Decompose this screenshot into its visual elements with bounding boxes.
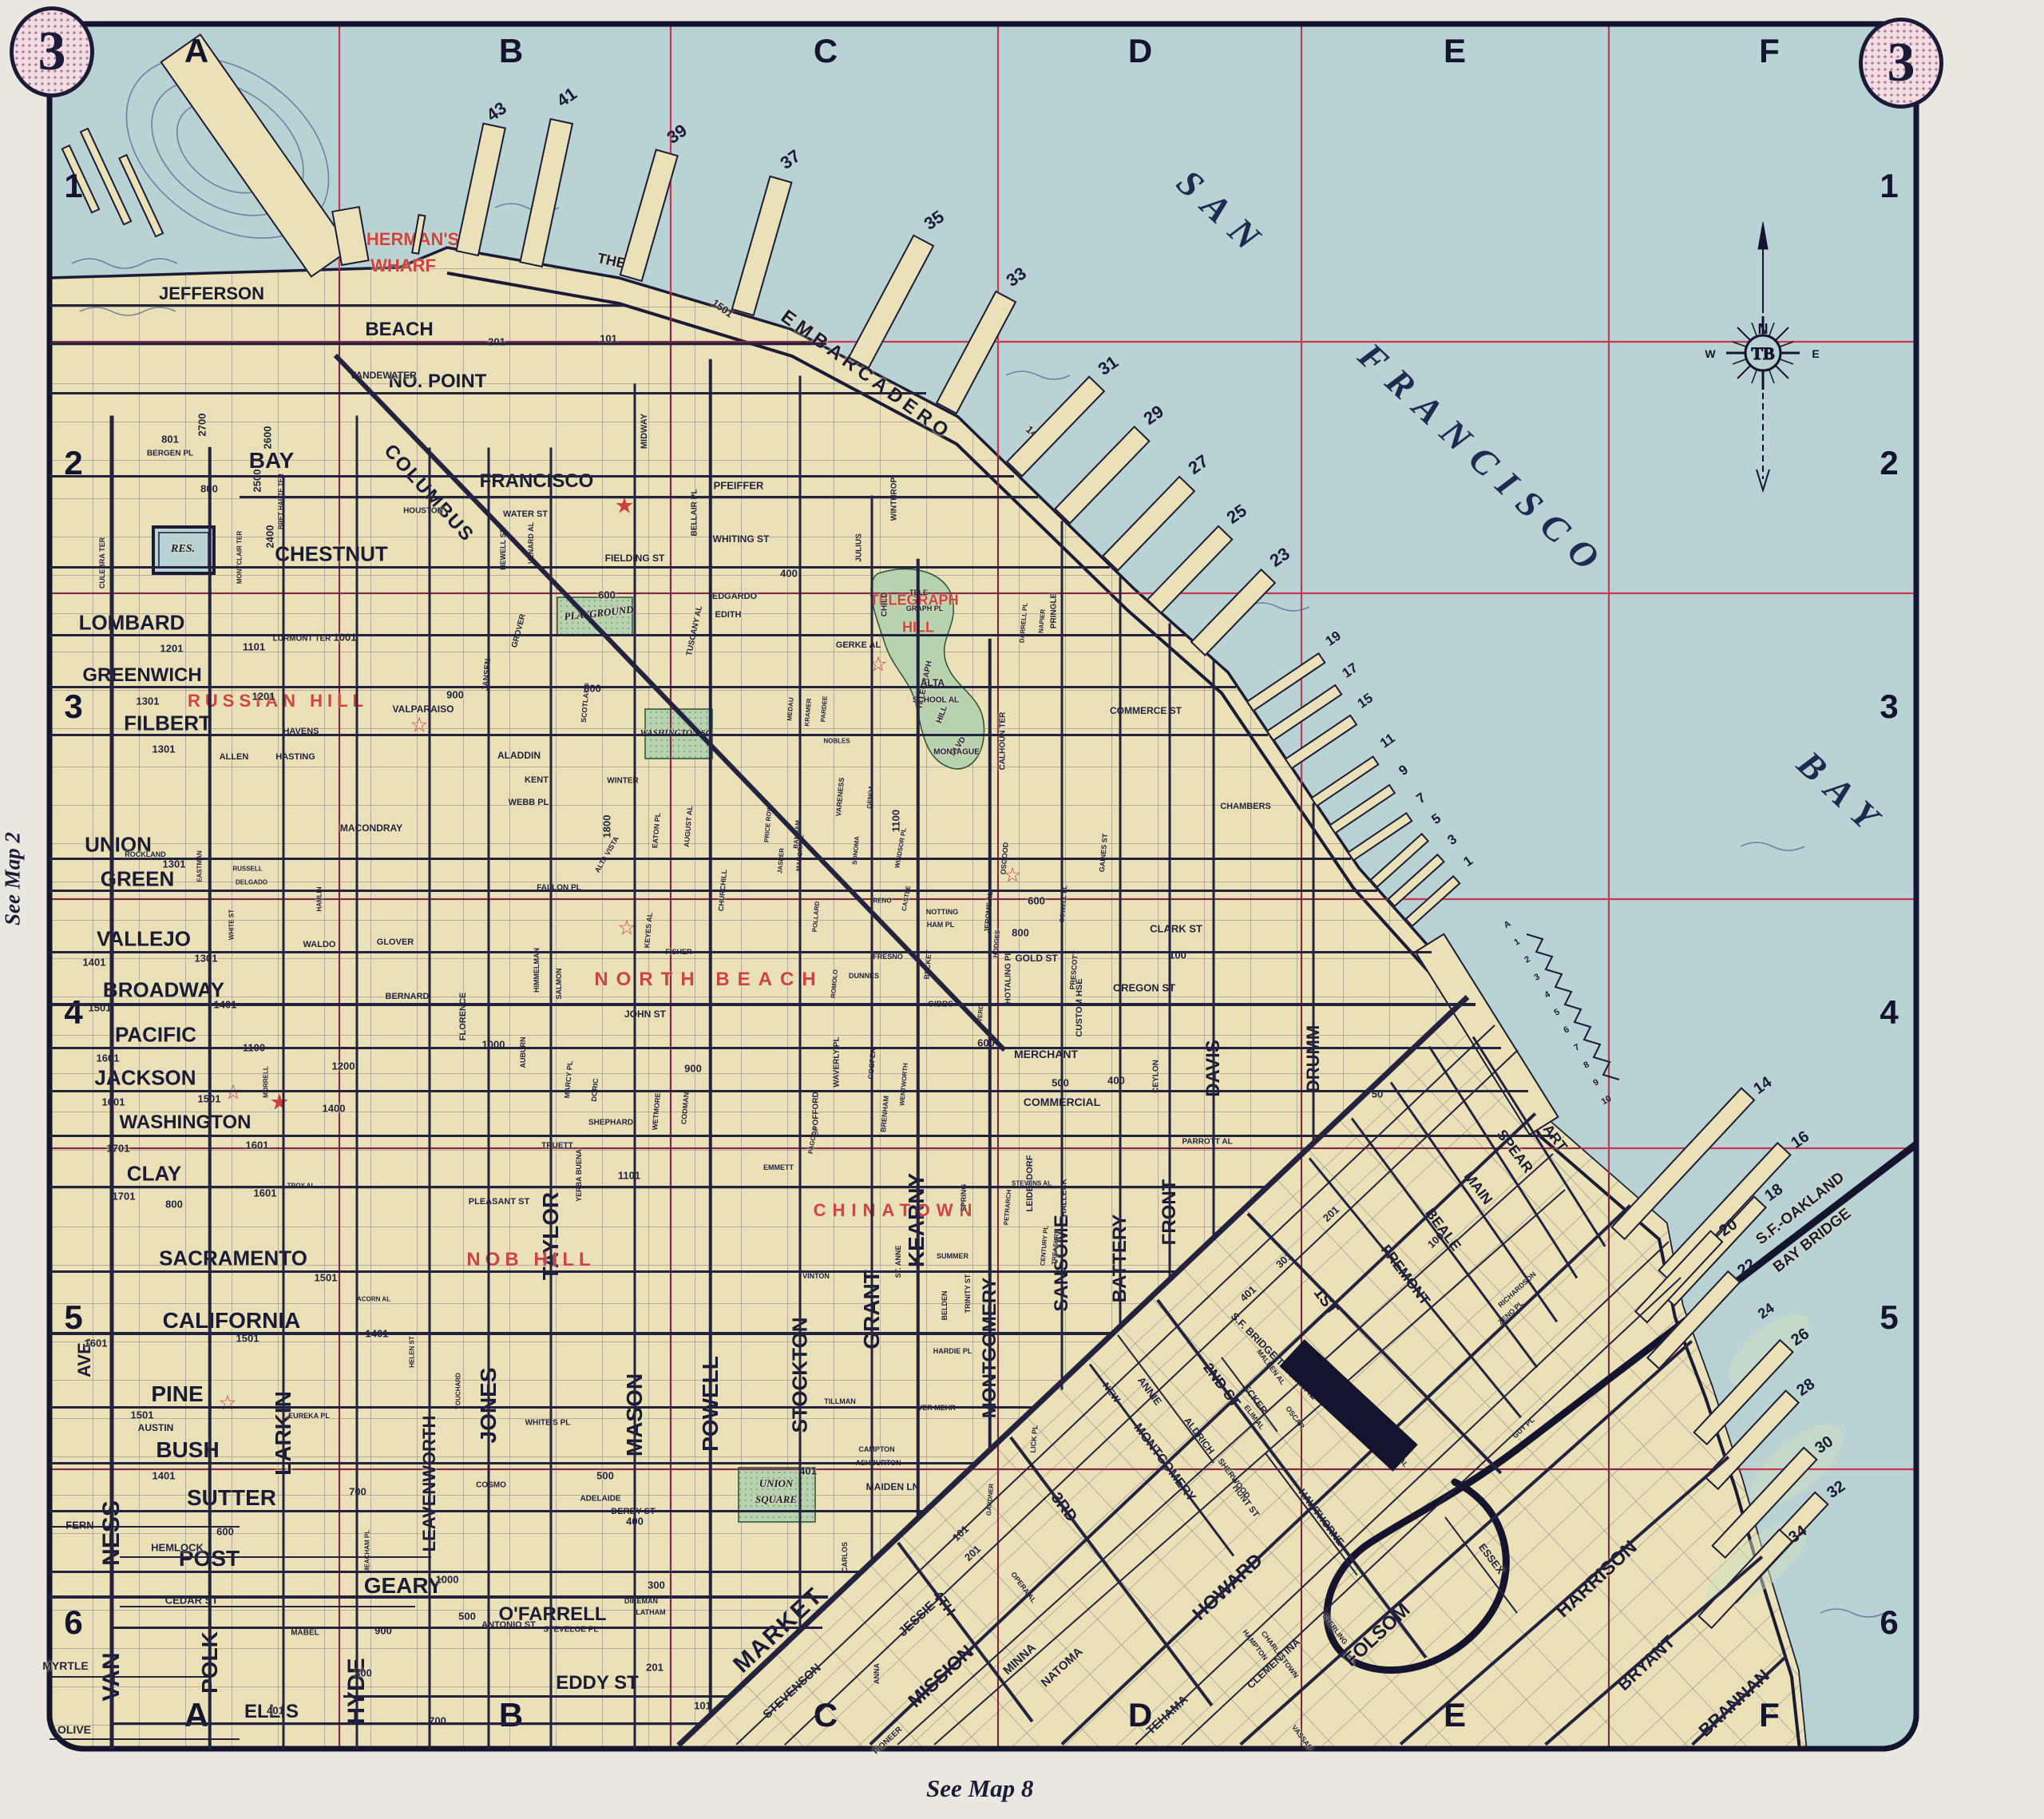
street-columbus-ave [334,354,1006,1052]
label-water-st: WATER ST [503,509,548,519]
ferry-slip-a: A [1503,919,1513,930]
label-vinton: VINTON [802,1272,830,1280]
label-windsor-pl: WINDSOR PL [893,827,908,869]
label-broadway: BROADWAY [103,978,224,1003]
label-california: CALIFORNIA [163,1308,301,1334]
pier-23 [1190,569,1277,656]
ferry-slip-9: 9 [1591,1077,1600,1088]
pier-number-22: 22 [1734,1255,1759,1281]
block-number-2500: 2500 [252,470,263,493]
pier-26 [1693,1339,1794,1445]
street-van-ness-ave [110,415,114,1749]
label-macondray: MACONDRAY [340,822,402,834]
label-union: UNION [759,1477,794,1490]
pier-number-30: 30 [1812,1433,1836,1458]
block-number-1501: 1501 [131,1409,154,1421]
street-bay-st [50,475,1014,478]
grid-col-a-bottom: A [184,1696,208,1734]
wharf-structure [118,154,164,238]
label-myrtle: MYRTLE [42,1659,89,1672]
label-gold-st: GOLD ST [1015,953,1057,964]
label-medau: MEDAU [786,697,795,721]
label-dunnes: DUNNES [849,972,879,980]
ferry-slip-2: 2 [1523,954,1531,965]
block-number-2400: 2400 [264,525,276,549]
street-bridge-terminal-building [1279,1339,1417,1472]
label-kramer: KRAMER [803,698,813,727]
label-summer: SUMMER [937,1252,969,1260]
label-john-st: JOHN ST [624,1009,666,1020]
label-chestnut: CHESTNUT [275,542,388,567]
label-helen-st: HELEN ST [409,1336,416,1368]
label-campton: CAMPTON [858,1445,894,1453]
pier-number-33: 33 [1003,263,1031,291]
label-spring: SPRING [960,1184,968,1212]
pier-number-16: 16 [1788,1127,1812,1153]
grid-row-6-right: 6 [1880,1603,1898,1642]
label-allen: ALLEN [220,752,249,762]
grid-col-f-top: F [1759,32,1780,70]
street-washington-st [50,1135,1553,1137]
ferry-slip-7: 7 [1572,1042,1581,1052]
grid-col-a-top: A [184,32,208,70]
pier-35 [848,234,935,369]
label-florence: FLORENCE [458,993,468,1041]
label-24: 24 [1755,1300,1777,1323]
block-number-400: 400 [780,568,798,580]
see-map-2-reference: See Map 2 [1,799,26,959]
label-anna: ANNA [873,1663,881,1684]
block-number-600: 600 [1028,895,1045,907]
label-pringle: PRINGLE [1050,593,1059,628]
label-jefferson: JEFFERSON [159,283,264,304]
block-number-800: 800 [165,1199,183,1211]
street-bush-st [50,1462,976,1464]
label-washington: WASHINGTON [120,1112,252,1134]
street-leavenworth-st [429,447,431,1749]
label-grover: GROVER [510,613,528,649]
label-aladdin: ALADDIN [497,750,541,761]
street-broadway [50,1003,1476,1006]
label-child: CHILD [881,592,889,617]
label-russell: RUSSELL [232,866,262,873]
label-nobles: NOBLES [823,738,850,745]
label-waldo: WALDO [303,940,336,949]
street-battery-st [1119,577,1122,1329]
label-eastman: EASTMAN [196,850,204,882]
label-napier: NAPIER [1037,609,1047,634]
pier-43 [455,122,506,256]
label-wharf: WHARF [370,256,436,276]
pier-number-11: 11 [1377,731,1398,752]
map-number-badge-top-right: 3 [1859,18,1943,109]
pier-number-17: 17 [1340,660,1361,681]
block-number-1601: 1601 [254,1187,277,1199]
label-hodges: HODGES [992,929,1001,957]
street-greenwich-st [50,686,1236,688]
label-reno: RENO [873,898,891,905]
pier-number-14: 14 [1750,1073,1775,1099]
street-myrtle-st [50,1676,208,1678]
pier-number-26: 26 [1788,1325,1812,1350]
grid-row-3-right: 3 [1880,688,1898,726]
label-webb-pl: WEBB PL [509,798,549,807]
label-tele: TELE- [909,588,930,596]
street-pacific-ave [50,1047,1501,1049]
label-meacham-pl: MEACHAM PL [364,1530,371,1573]
block-number-800: 800 [584,683,601,695]
street-lombard-st [50,634,1186,636]
label-maiden-ln: MAIDEN LN [866,1481,920,1492]
block-number-1201: 1201 [160,643,184,655]
label-eaton-pl: EATON PL [651,812,662,848]
label-hardie-pl: HARDIE PL [933,1347,972,1355]
ferry-slip-8: 8 [1582,1060,1590,1070]
pier-number-27: 27 [1185,450,1213,478]
label-brenham: BRENHAM [879,1096,890,1133]
grid-col-f-bottom: F [1759,1696,1780,1734]
block-number-900: 900 [684,1063,702,1075]
street-montgomery-st [988,639,992,1449]
pier-37 [731,176,793,316]
label-calhoun-ter: CALHOUN TER [999,712,1008,771]
street-sacramento-st [50,1270,1176,1273]
label-fresno: FRESNO [873,953,903,961]
grid-col-e-top: E [1444,32,1466,70]
label-lombard: LOMBARD [79,611,185,636]
label-montague: MONTAGUE [933,748,980,757]
block-number-201: 201 [646,1662,664,1674]
label-himmelman: HIMMELMAN [533,948,541,993]
grid-col-b-top: B [499,32,523,70]
ferry-slip-10: 10 [1600,1094,1614,1108]
label-white-st: WHITE ST [228,909,236,940]
label-codman: CODMAN [679,1092,690,1124]
wharf-structure [80,128,133,226]
label-latham: LATHAM [636,1608,665,1616]
label-graph-pl: GRAPH PL [906,604,944,612]
label-truett: TRUETT [541,1142,572,1151]
block-number-2600: 2600 [262,426,274,450]
street-hemlock-st [120,1556,431,1558]
street-larkin-st [283,476,285,1749]
grid-row-1-right: 1 [1880,167,1898,205]
label-trinity-st: TRINITY ST [964,1274,972,1314]
block-number-1401: 1401 [83,957,106,969]
label-francisco: FRANCISCO [480,470,594,493]
street-davis-st [1213,660,1215,1238]
ferry-slip-1: 1 [1512,937,1521,947]
label-emmett: EMMETT [763,1163,794,1171]
street-minna-st [897,1153,1553,1745]
pier-27 [1102,476,1195,572]
pier-number-19: 19 [1323,628,1345,649]
label-chambers: CHAMBERS [1220,802,1271,811]
pier-number-35: 35 [921,206,949,234]
label-s-f-oakland: S.F.-OAKLAND [1753,1169,1848,1249]
pier-33 [936,291,1017,414]
pier-number-29: 29 [1140,401,1168,429]
pier-number-3: 3 [1444,831,1460,849]
label-white-s-pl: WHITE'S PL [525,1419,571,1428]
street-ofarrell-st [112,1627,822,1629]
street-front-st [1169,623,1171,1279]
block-number-1301: 1301 [137,695,160,707]
grid-col-b-bottom: B [499,1696,523,1734]
label-mabel: MABEL [291,1629,319,1638]
label-bergen-pl: BERGEN PL [147,450,193,458]
pier-number-32: 32 [1824,1477,1848,1503]
label-wentworth: WENTWORTH [898,1063,909,1106]
ferry-slip-6: 6 [1562,1024,1571,1035]
label-eddy-st: EDDY ST [556,1672,639,1694]
block-number-1800: 1800 [601,815,613,838]
label-petrarch: PETRARCH [1003,1189,1013,1225]
label-morrell: MORRELL [263,1066,270,1098]
street-jessie-st [784,1049,1518,1745]
label-oregon-st: OREGON ST [1113,982,1175,994]
label-kent: KENT [525,775,549,785]
label-essex: ESSEX [1476,1541,1507,1576]
grid-col-d-bottom: D [1128,1696,1152,1734]
street-powell-st [709,359,712,1714]
label-res: RES. [171,543,195,556]
label-russian-hill: RUSSIAN HILL [188,691,368,711]
pier-number-39: 39 [664,120,691,148]
label-clark-st: CLARK ST [1150,923,1202,935]
label-darrell-pl: DARRELL PL [1018,602,1028,643]
label-natoma: NATOMA [1039,1645,1086,1690]
label-austin: AUSTIN [138,1422,174,1433]
pier-number-41: 41 [553,83,581,111]
label-gaines-st: GAINES ST [1098,833,1109,872]
label-august-al: AUGUST AL [683,806,695,848]
label-ham-pl: HAM PL [927,921,955,929]
label-hotaling-pl: HOTALING PL [1004,950,1013,1004]
label-adelaide: ADELAIDE [580,1495,620,1504]
label-guy-pl: GUY PL [1511,1416,1535,1440]
label-st-anne: ST. ANNE [894,1246,902,1278]
label-culebra-ter: CULEBRA TER [98,537,106,588]
pier-number-25: 25 [1223,500,1251,528]
label-merchant: MERCHANT [1014,1048,1078,1060]
grid-col-d-top: D [1128,32,1152,70]
block-number-1601: 1601 [246,1139,269,1151]
pier-number-31: 31 [1095,351,1123,379]
grid-row-5-right: 5 [1880,1298,1898,1337]
pier-number-7: 7 [1413,790,1428,807]
label-vassar: VASSAR [1290,1723,1314,1751]
ferry-slip-4: 4 [1543,989,1551,1000]
label-montclair-ter: MONTCLAIR TER [236,531,244,584]
block-number-500: 500 [596,1470,614,1482]
label-bay: BAY [1789,743,1897,847]
street-union-st [50,858,1351,860]
label-notting: NOTTING [926,908,959,916]
pier-number-43: 43 [483,97,511,125]
block-number-1201: 1201 [252,691,275,703]
wharf-structure [1414,933,1559,1135]
ferry-slip-5: 5 [1552,1007,1561,1017]
block-number-300: 300 [648,1579,665,1591]
label-sutter: SUTTER [187,1485,276,1511]
block-number-900: 900 [446,689,464,701]
street-clay-st [50,1186,1266,1188]
street-filbert-st [50,734,1268,736]
pier-number-5: 5 [1428,810,1444,828]
street-polk-st [208,447,212,1749]
street-tehama-st [1135,1241,1669,1745]
label-pacific: PACIFIC [115,1023,196,1048]
block-number-600: 600 [598,589,616,601]
label-salmon: SALMON [555,969,563,1000]
label-yerba-buena: YERBA BUENA [575,1149,583,1202]
label-sonoma: SONOMA [851,836,861,866]
label-shephard: SHEPHARD [588,1119,633,1127]
street-pine-st [50,1406,1035,1409]
block-number-800: 800 [1012,927,1029,939]
label-gerke-al: GERKE AL [836,640,881,650]
label-hill: HILL [935,705,949,725]
label-midway: MIDWAY [640,414,649,449]
label-pine: PINE [151,1381,203,1407]
pier-number-1: 1 [1460,853,1476,870]
block-number-1000: 1000 [436,1574,459,1586]
pier-41 [519,118,573,267]
block-number-401: 401 [1238,1283,1258,1304]
label-wetmore: WETMORE [651,1092,662,1131]
label-lick-pl: LICK PL [1028,1425,1039,1453]
label-square: SQUARE [755,1493,797,1506]
street-jefferson-st [50,304,623,307]
label-belden: BELDEN [941,1290,949,1320]
label-acorn-al: ACORN AL [357,1296,390,1303]
pier-number-9: 9 [1396,762,1411,779]
block-number-1200: 1200 [332,1060,355,1072]
grid-row-4-left: 4 [64,993,82,1032]
label-romolo: ROMOLO [830,969,839,999]
label-harrison: HARRISON [1552,1536,1642,1623]
map-overlay: JEFFERSONBEACHNO. POINTBAYFRANCISCOCHEST… [0,0,2044,1819]
label-vareness: VARENESS [834,777,846,817]
block-number-2700: 2700 [196,414,208,437]
map-number-badge-top-left: 3 [10,6,94,97]
block-number-1400: 1400 [323,1103,346,1115]
block-number-1601: 1601 [97,1052,120,1064]
label-clay: CLAY [127,1162,181,1187]
pier-39 [620,149,679,282]
label-pagoda: PAGODA [807,1126,819,1155]
block-number-1301: 1301 [163,858,186,870]
street-sansome-st [1061,521,1064,1389]
block-number-1501: 1501 [315,1272,338,1284]
grid-row-1-left: 1 [64,167,82,205]
block-number-400: 400 [1107,1075,1125,1087]
pier-25 [1147,525,1234,614]
label-pleasant-st: PLEASANT ST [469,1197,529,1207]
block-number-1101: 1101 [618,1170,640,1182]
label-bryant: BRYANT [1614,1631,1680,1695]
label-bernard: BERNARD [386,992,430,1001]
street-vallejo-st [50,951,1432,953]
label-tuscany-al: TUSCANY AL [685,605,704,657]
street-green-st [50,890,1377,892]
label-eureka-pl: EUREKA PL [288,1412,330,1420]
label-jasper: JASPER [776,848,786,874]
street-stockton-st [799,375,802,1631]
street-grant-ave [871,495,873,1563]
label-filbert: FILBERT [124,711,212,736]
label-fern: FERN [65,1520,93,1532]
star-marker: ★ [269,1089,289,1116]
label-alta-vista: ALTA VISTA [593,835,620,874]
street-north-point-st [50,392,926,394]
block-number-500: 500 [458,1611,476,1623]
street-ellis-st [112,1722,699,1725]
label-ceylon: CEYLON [1152,1060,1161,1093]
street-drumm-st [1313,802,1315,1143]
label-beach: BEACH [365,319,433,341]
pier-number-18: 18 [1761,1180,1786,1206]
street-jones-st [488,447,490,1749]
label-waverly-pl: WAVERLY PL [833,1036,842,1087]
pier-number-37: 37 [777,145,805,173]
label-century-pl: CENTURY PL [1039,1225,1049,1266]
grid-col-c-top: C [814,32,838,70]
street-taylor-st [550,447,553,1749]
label-francisco: FRANCISCO [1350,335,1617,588]
label-carlos: CARLOS [841,1542,849,1572]
block-number-1301: 1301 [195,953,218,965]
grid-row-6-left: 6 [64,1603,82,1642]
label-keyes-al: KEYES AL [643,912,654,948]
grid-row-2-right: 2 [1880,444,1898,482]
label-houston: HOUSTON [403,507,443,516]
label-auburn: AUBURN [519,1037,527,1068]
grid-row-3-left: 3 [64,688,82,726]
label-parrott-al: PARROTT AL [1182,1138,1232,1147]
street-francisco-st [240,496,1038,498]
block-number-1100: 1100 [890,810,902,832]
street-eddy-st [343,1695,729,1698]
ferry-slip-3: 3 [1532,972,1541,982]
block-number-1101: 1101 [243,641,265,653]
label-cosmo: COSMO [476,1481,506,1490]
pier-29 [1054,426,1151,525]
label-marcy-pl: MARCY PL [563,1060,574,1099]
grid-row-4-right: 4 [1880,993,1898,1032]
label-san: SAN [1169,161,1278,267]
grid-row-5-left: 5 [64,1298,82,1337]
label-nob-hill: NOB HILL [466,1249,595,1271]
street-beach-st [50,343,826,345]
pier-number-15: 15 [1355,690,1377,711]
label-olive: OLIVE [57,1723,91,1736]
label-greenwich: GREENWICH [82,664,201,687]
street-mason-st [634,383,636,1749]
block-number-801: 801 [161,434,179,446]
label-chinatown: CHINATOWN [814,1200,979,1221]
street-hyde-st [356,415,358,1749]
pier-number-28: 28 [1793,1375,1818,1401]
label-edgardo: EDGARDO [712,592,757,601]
label-tillman: TILLMAN [824,1397,856,1405]
block-number-401: 401 [799,1465,817,1477]
label-edith: EDITH [715,610,742,620]
pier-31 [1006,375,1105,477]
street-post-st [50,1571,862,1573]
street-kearny-st [917,559,920,1518]
